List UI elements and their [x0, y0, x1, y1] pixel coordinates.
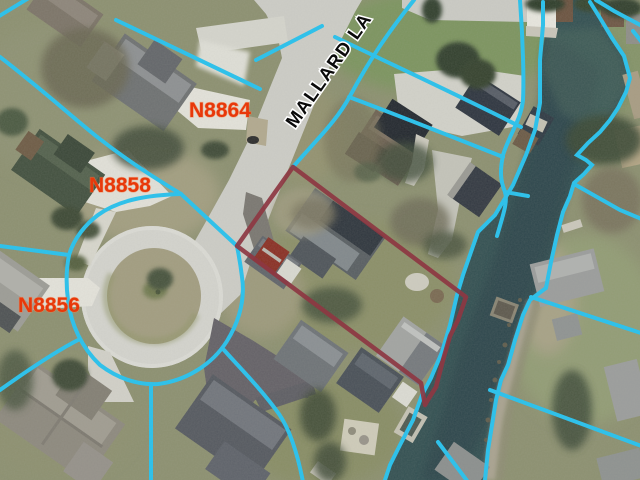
svg-text:N8856: N8856	[18, 294, 80, 317]
svg-text:N8858: N8858	[89, 174, 151, 197]
svg-text:N8864: N8864	[189, 99, 251, 122]
